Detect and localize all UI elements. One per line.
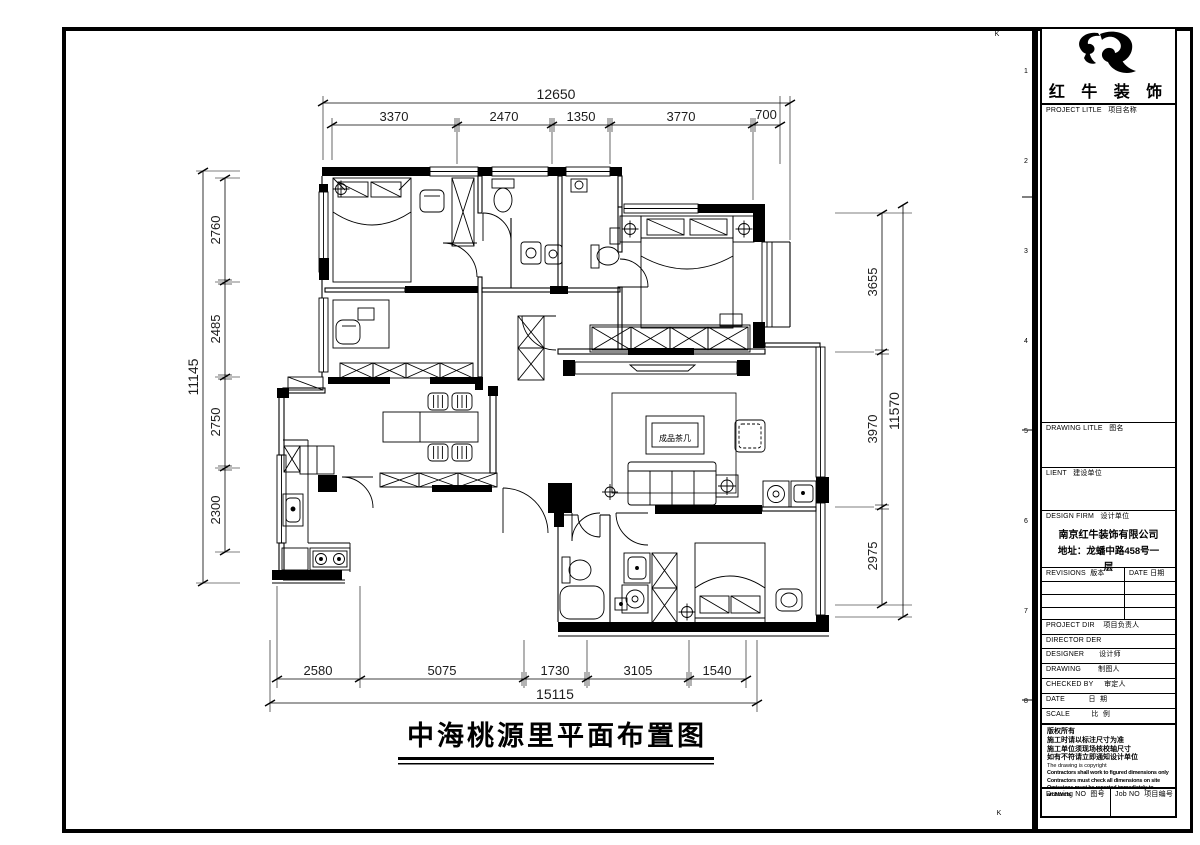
- dim-left-seg: 2300: [208, 496, 223, 525]
- zone-number: 2: [1024, 158, 1028, 165]
- laundry: [763, 481, 816, 507]
- note-line: Contractors must check all dimensions on…: [1042, 778, 1175, 785]
- dim-bottom-seg: 1540: [703, 663, 732, 678]
- dim-right-seg: 2975: [865, 542, 880, 571]
- numbers-divider: [1110, 789, 1111, 818]
- project-dir-label: PROJECT DIR 项目负责人: [1042, 620, 1175, 629]
- dim-top-total: 12650: [537, 86, 576, 102]
- zone-marks: 1 2 3 4 5 6 7 8 K K: [995, 31, 1032, 817]
- dim-bottom-seg: 5075: [428, 663, 457, 678]
- revisions-grid-line: [1042, 607, 1175, 608]
- dimension-ticks: [198, 100, 908, 706]
- scale-box: SCALE 比 例: [1042, 708, 1175, 723]
- numbers-box: Drawing NO 图号 Job NO 项目编号: [1042, 789, 1175, 818]
- dim-bottom-seg: 2580: [304, 663, 333, 678]
- firm-name: 南京红牛装饰有限公司: [1042, 526, 1175, 541]
- note-line: 如有不符请立即通知设计单位: [1042, 754, 1175, 763]
- zone-number: 8: [1024, 698, 1028, 705]
- dimension-lines: 12650 3370 2470 1350 3770 700 2580 5075 …: [185, 86, 912, 712]
- corner-mark-top: K: [995, 31, 1000, 38]
- walls-bearing: [272, 167, 829, 632]
- project-title-box: PROJECT LITLE 项目名称: [1042, 105, 1175, 422]
- drawing-by-label: DRAWING 制图人: [1042, 664, 1175, 673]
- dim-left-seg: 2760: [208, 216, 223, 245]
- director-box: DIRECTOR DER: [1042, 634, 1175, 648]
- dim-bottom-seg: 3105: [624, 663, 653, 678]
- dim-right-seg: 3655: [865, 268, 880, 297]
- bathroom-2: [571, 179, 620, 268]
- logo-box: 红 牛 装 饰: [1042, 29, 1175, 105]
- zone-number: 4: [1024, 338, 1028, 345]
- drawing-title-box: DRAWING LITLE 图名: [1042, 422, 1175, 467]
- dim-bottom-total: 15115: [536, 686, 574, 702]
- coffee-table-label: 成品茶几: [659, 433, 691, 443]
- dim-bottom-seg: 1730: [541, 663, 570, 678]
- note-line: The drawing is copyright: [1042, 763, 1175, 770]
- brand-name: 红 牛 装 饰: [1042, 78, 1175, 102]
- zone-number: 3: [1024, 248, 1028, 255]
- notes-box: 版权所有 施工时请以标注尺寸为准 施工单位须现场核校轴尺寸 如有不符请立即通知设…: [1042, 723, 1175, 789]
- dim-top-seg: 3370: [380, 109, 409, 124]
- client-box: LIENT 建设单位: [1042, 467, 1175, 510]
- title-block: 红 牛 装 饰 PROJECT LITLE 项目名称 DRAWING LITLE…: [1040, 27, 1177, 818]
- drawing-no-label: Drawing NO 图号: [1042, 789, 1105, 798]
- dim-left-seg: 2485: [208, 315, 223, 344]
- numbers-bottom-line: [1042, 817, 1175, 818]
- dim-left-total: 11145: [185, 358, 201, 395]
- drawing-title-label: DRAWING LITLE 图名: [1042, 423, 1175, 432]
- design-firm-box: DESIGN FIRM 设计单位 南京红牛装饰有限公司 地址：龙蟠中路458号一…: [1042, 510, 1175, 567]
- checked-by-label: CHECKED BY 审定人: [1042, 679, 1175, 688]
- revision-date-label: DATE 日期: [1125, 568, 1165, 577]
- zone-number: 5: [1024, 428, 1028, 435]
- dim-right-total: 11570: [886, 392, 902, 430]
- design-firm-label: DESIGN FIRM 设计单位: [1042, 511, 1175, 520]
- plan-title: 中海桃源里平面布置图: [398, 721, 714, 765]
- drawing-by-box: DRAWING 制图人: [1042, 663, 1175, 678]
- date-box: DATE 日 期: [1042, 693, 1175, 708]
- bathroom-3: [560, 553, 650, 619]
- master-bedroom: [620, 216, 754, 328]
- cabinets: [284, 178, 750, 623]
- scale-label: SCALE 比 例: [1042, 709, 1175, 718]
- job-no-label: Job NO 项目编号: [1111, 789, 1173, 798]
- designer-box: DESIGNER 设计师: [1042, 648, 1175, 663]
- dim-right-seg: 3970: [865, 415, 880, 444]
- project-title-label: PROJECT LITLE 项目名称: [1042, 105, 1175, 114]
- note-line: 施工时请以标注尺寸为准: [1042, 737, 1175, 746]
- revisions-table: REVISIONS 版本 DATE 日期: [1042, 567, 1175, 619]
- study-room: [333, 300, 389, 348]
- bed-room1: [333, 178, 445, 282]
- dim-top-seg: 2470: [490, 109, 519, 124]
- dining: [383, 393, 478, 461]
- note-line: 版权所有: [1042, 728, 1175, 737]
- floor-plan: 成品茶几: [272, 167, 829, 636]
- note-line: 施工单位须现场核校轴尺寸: [1042, 746, 1175, 755]
- project-dir-box: PROJECT DIR 项目负责人: [1042, 619, 1175, 634]
- revisions-grid-line: [1042, 594, 1175, 595]
- dimension-texts: 12650 3370 2470 1350 3770 700 2580 5075 …: [185, 86, 902, 702]
- date-label: DATE 日 期: [1042, 694, 1175, 703]
- note-line: Contractors shall work to figured dimens…: [1042, 770, 1175, 777]
- revisions-label: REVISIONS 版本: [1042, 568, 1105, 577]
- floor-plan-canvas: 1 2 3 4 5 6 7 8 K K: [0, 0, 1200, 845]
- firm-address: 地址：龙蟠中路458号一: [1042, 543, 1175, 557]
- checked-by-box: CHECKED BY 审定人: [1042, 678, 1175, 693]
- revisions-grid-line: [1042, 581, 1175, 582]
- zone-number: 6: [1024, 518, 1028, 525]
- director-label: DIRECTOR DER: [1042, 635, 1175, 644]
- zone-number: 7: [1024, 608, 1028, 615]
- plan-title-text: 中海桃源里平面布置图: [407, 721, 707, 751]
- dim-top-seg: 700: [755, 107, 777, 122]
- dim-top-seg: 3770: [667, 109, 696, 124]
- dim-left-seg: 2750: [208, 408, 223, 437]
- dim-top-seg: 1350: [567, 109, 596, 124]
- client-label: LIENT 建设单位: [1042, 468, 1175, 477]
- drawing-sheet: { "sheet": { "plan_title": "中海桃源里平面布置图",…: [0, 0, 1200, 845]
- designer-label: DESIGNER 设计师: [1042, 649, 1175, 658]
- zone-number: 1: [1024, 68, 1028, 75]
- corner-mark-bottom: K: [997, 810, 1002, 817]
- brand-logo-icon: [1042, 29, 1179, 81]
